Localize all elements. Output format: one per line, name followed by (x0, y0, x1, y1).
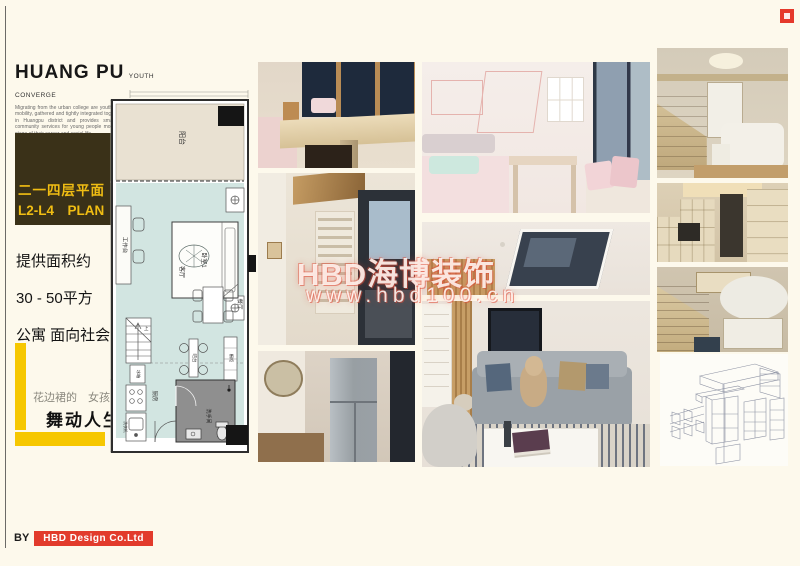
tv-screen (678, 223, 700, 242)
desk-legs (513, 165, 518, 213)
plan-desk-label: 工作台 (121, 237, 129, 254)
box-shelf-grid (547, 77, 583, 122)
plan-balcony-label: 阳台 (178, 131, 187, 145)
beanbag (422, 404, 477, 467)
render-loft-room (657, 48, 788, 178)
plan-fridge-label: 冰箱 (135, 370, 142, 378)
mirror-gap (720, 194, 744, 257)
photo-ceiling-mirror (422, 222, 650, 295)
dark-window-edge (390, 351, 415, 462)
ceiling-round-light (709, 53, 743, 69)
photo-hallway (258, 173, 415, 345)
shelf-lines (424, 314, 449, 397)
teddy-head (525, 356, 543, 376)
corner-red-mark (780, 9, 794, 23)
sketch-furniture (660, 354, 788, 466)
dark-corner (694, 337, 720, 352)
plan-bar-label: 吧台 (191, 354, 198, 363)
pillow-blue (485, 363, 512, 391)
footer-company-badge: HBD Design Co.Ltd (34, 531, 153, 546)
plan-kitchen-label: 厨房 (151, 390, 159, 402)
plan-dining-label: 餐厅 (236, 298, 244, 310)
corner-red-glyph (784, 13, 790, 19)
headboard (422, 134, 495, 152)
summary-line3: 公寓 面向社会 (16, 317, 110, 354)
photo-living-room (422, 301, 650, 467)
doorway-floor (365, 290, 412, 338)
plan-bed: 卧室1 (172, 222, 238, 298)
plan-bath-label: 洗手间 (205, 408, 212, 423)
wire-shelf-left (431, 80, 483, 115)
plan-badge-line1: 二一四层平面 (18, 179, 112, 199)
wood-counter (258, 433, 324, 462)
footer-by: BY (14, 532, 29, 544)
loft-beam (657, 74, 788, 81)
photo-dining-table (258, 62, 415, 168)
pillow-slate (586, 364, 609, 389)
white-sofa (721, 123, 784, 167)
poster-page: HUANG PU YOUTH CONVERGE Migrating from t… (0, 0, 800, 566)
plan-living-label: 客厅 (178, 266, 186, 278)
summary-line2: 30 - 50平方 (16, 280, 110, 317)
white-sofa-lines (723, 318, 783, 349)
desk (509, 156, 577, 165)
ceiling-light-dot (500, 242, 505, 247)
doorway-window (369, 201, 410, 259)
white-ottoman (712, 144, 730, 165)
pink-pillow (311, 98, 336, 113)
closet-right (747, 189, 788, 262)
table-opening (305, 145, 352, 168)
slogan-small: 花边裙的 女孩 (33, 389, 110, 405)
plan-shaft-top (218, 106, 244, 126)
wall-frame (267, 242, 282, 259)
plan-stairs (126, 318, 151, 363)
plan-stairs-label: 上 (144, 325, 149, 331)
footer: BY HBD Design Co.Ltd (14, 529, 153, 547)
photo-bedroom (422, 62, 650, 213)
mirror-reflection (523, 238, 576, 267)
brand-title: HUANG PU (15, 62, 124, 83)
render-wardrobe (657, 183, 788, 262)
ceiling-beam (293, 173, 365, 204)
slogan-hbar (15, 432, 105, 446)
plan-washer-label: 洗衣机 (123, 421, 128, 433)
wood-floor (694, 165, 788, 178)
plan-shaft-bottom (226, 425, 248, 445)
photo-kitchen-fridge (258, 351, 415, 462)
plan-badge-line2: L2-L4 PLAN (18, 199, 112, 219)
round-mirror (264, 360, 303, 397)
vase (504, 421, 511, 448)
plan-kitchen-fixtures (126, 385, 146, 441)
plan-right-tab (248, 255, 256, 272)
display-dots (318, 218, 353, 307)
floor-plan: 阳台 工作台 卧室1 客厅 (110, 90, 260, 462)
plan-badge: 二一四层平面 L2-L4 PLAN (15, 133, 112, 225)
wire-shelf-mid (477, 71, 542, 133)
mint-pillow (429, 156, 479, 174)
slogan-vbar (15, 343, 26, 430)
summary-line1: 提供面积约 (16, 243, 110, 280)
books-stack (512, 429, 550, 453)
left-edge-rule (5, 6, 6, 548)
fridge-line2 (354, 401, 356, 462)
pillow-tan (558, 361, 587, 391)
slat-cabinet (427, 259, 495, 296)
render-loft-stairs (657, 267, 788, 352)
plan-cabinet-label: 橱柜 (228, 354, 235, 362)
summary-text: 提供面积约 30 - 50平方 公寓 面向社会 (16, 243, 110, 354)
round-ceiling (720, 276, 788, 320)
stairs-treads (657, 87, 707, 170)
seat-pillow2 (610, 156, 640, 189)
